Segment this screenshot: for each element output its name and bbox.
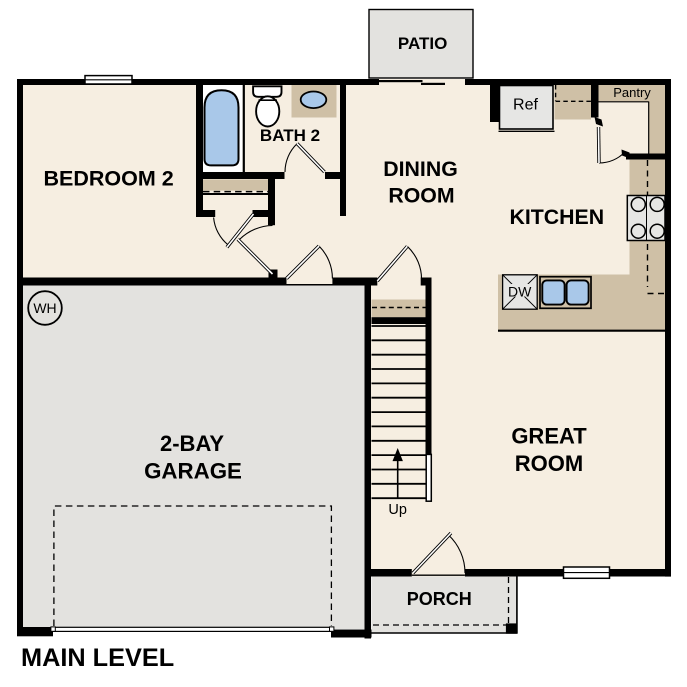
svg-text:KITCHEN: KITCHEN xyxy=(509,205,604,229)
svg-text:MAIN LEVEL: MAIN LEVEL xyxy=(21,644,174,672)
svg-text:DINING: DINING xyxy=(383,157,458,181)
svg-text:PATIO: PATIO xyxy=(398,34,447,53)
svg-text:DW: DW xyxy=(508,284,532,300)
svg-text:Pantry: Pantry xyxy=(613,85,651,100)
svg-text:Up: Up xyxy=(388,502,407,518)
svg-text:PORCH: PORCH xyxy=(407,589,472,609)
svg-text:Ref: Ref xyxy=(513,97,538,114)
svg-text:BEDROOM 2: BEDROOM 2 xyxy=(43,167,173,191)
svg-text:WH: WH xyxy=(33,300,56,316)
svg-text:GARAGE: GARAGE xyxy=(144,459,242,484)
svg-text:2-BAY: 2-BAY xyxy=(160,431,224,456)
svg-text:ROOM: ROOM xyxy=(515,451,583,476)
svg-text:ROOM: ROOM xyxy=(388,183,454,207)
svg-text:GREAT: GREAT xyxy=(511,423,587,448)
svg-text:BATH 2: BATH 2 xyxy=(260,126,320,145)
